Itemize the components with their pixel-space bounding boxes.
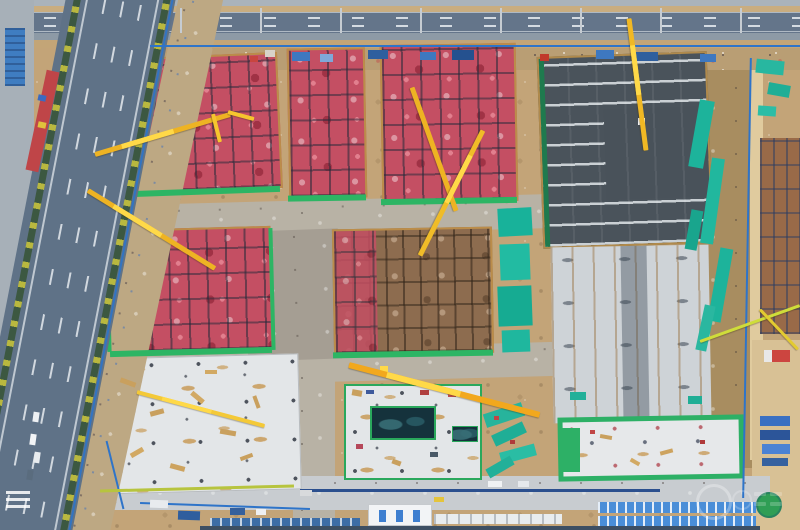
excavation-pit <box>370 406 436 440</box>
watermark-glyph <box>770 502 782 506</box>
red-patch <box>334 231 378 354</box>
prop <box>491 421 527 446</box>
site-office-white-shed <box>368 504 432 526</box>
prop <box>497 285 532 326</box>
prop <box>494 416 499 420</box>
watermark-glyph <box>754 502 766 506</box>
crosswalk <box>6 488 30 508</box>
white-slab-southeast <box>557 414 744 481</box>
watermark-glyph <box>754 492 766 496</box>
podium-slab-south <box>344 384 482 480</box>
watermark-glyph <box>770 492 782 496</box>
excavation-pit-small <box>452 426 478 442</box>
red-brick-block-east <box>760 138 800 334</box>
red-formwork-block-north-a <box>287 47 368 198</box>
red-formwork-block-north-b <box>380 43 519 203</box>
watermark-ring <box>696 484 732 520</box>
blue-door <box>396 510 403 522</box>
prop <box>499 444 537 465</box>
blue-building-west <box>5 28 25 86</box>
prop <box>483 402 525 428</box>
south-fence-line <box>200 526 760 530</box>
prop <box>178 511 200 521</box>
watermark-ring-small <box>732 490 752 510</box>
blue-door <box>379 510 386 522</box>
foundation-center-band <box>620 246 649 422</box>
prop <box>499 243 530 280</box>
foundation-strips-east <box>550 245 711 424</box>
brown-formwork-block-center <box>332 227 494 356</box>
blue-door <box>413 510 420 522</box>
prop <box>485 456 514 479</box>
roof-joints <box>539 53 711 247</box>
slab-surface <box>563 419 740 476</box>
site-office-long-strip <box>434 514 562 524</box>
prop <box>767 82 791 98</box>
prop <box>510 440 515 444</box>
photo-watermark <box>690 480 800 525</box>
dark-roof-building-northeast <box>537 51 714 249</box>
scene <box>0 0 800 530</box>
